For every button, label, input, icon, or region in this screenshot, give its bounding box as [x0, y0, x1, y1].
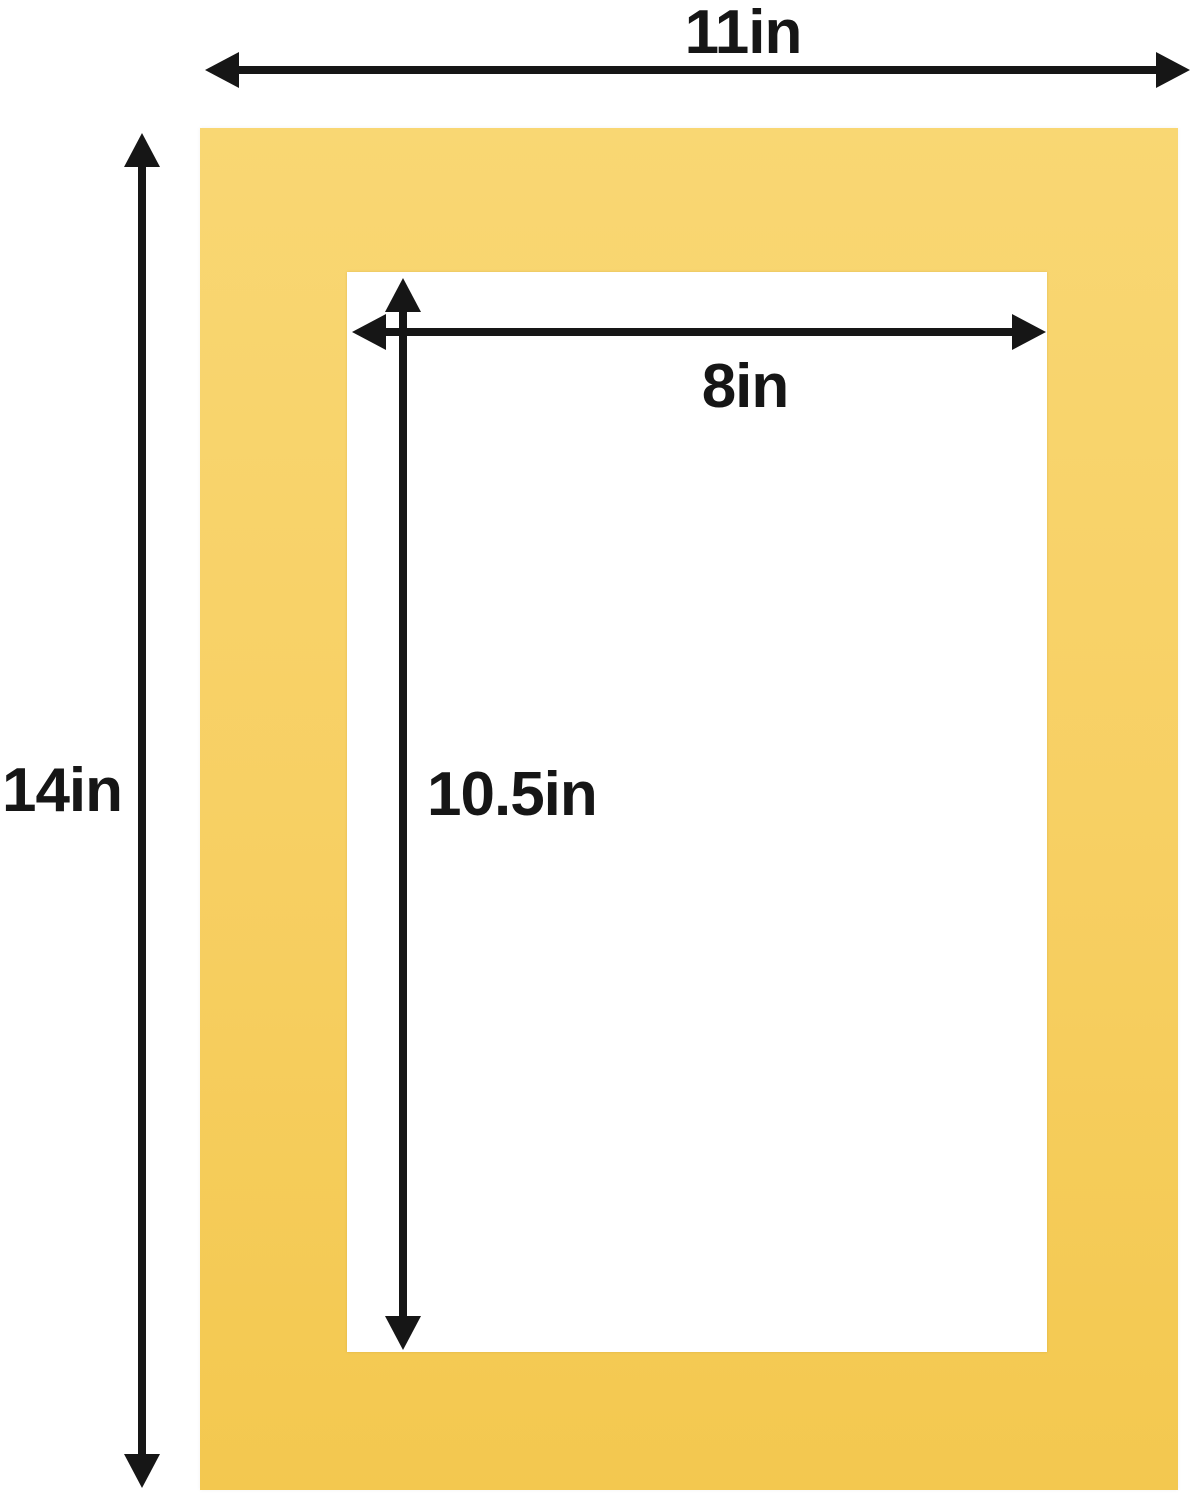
arrow-shaft [232, 66, 1163, 74]
outer-width-label: 11in [643, 2, 843, 64]
arrow-shaft [399, 305, 407, 1323]
opening-width-dimension-arrow [352, 314, 1046, 350]
opening-height-label: 10.5in [427, 764, 597, 826]
arrowhead-right-icon [1012, 314, 1046, 350]
opening-height-dimension-arrow [385, 278, 421, 1350]
arrow-shaft [379, 328, 1019, 336]
arrowhead-down-icon [124, 1454, 160, 1488]
dimension-diagram: 11in 14in 8in 10.5in [0, 0, 1203, 1500]
arrow-shaft [138, 160, 146, 1461]
outer-height-label: 14in [0, 760, 130, 822]
opening-width-label: 8in [645, 356, 845, 418]
arrowhead-down-icon [385, 1316, 421, 1350]
arrowhead-right-icon [1156, 52, 1190, 88]
